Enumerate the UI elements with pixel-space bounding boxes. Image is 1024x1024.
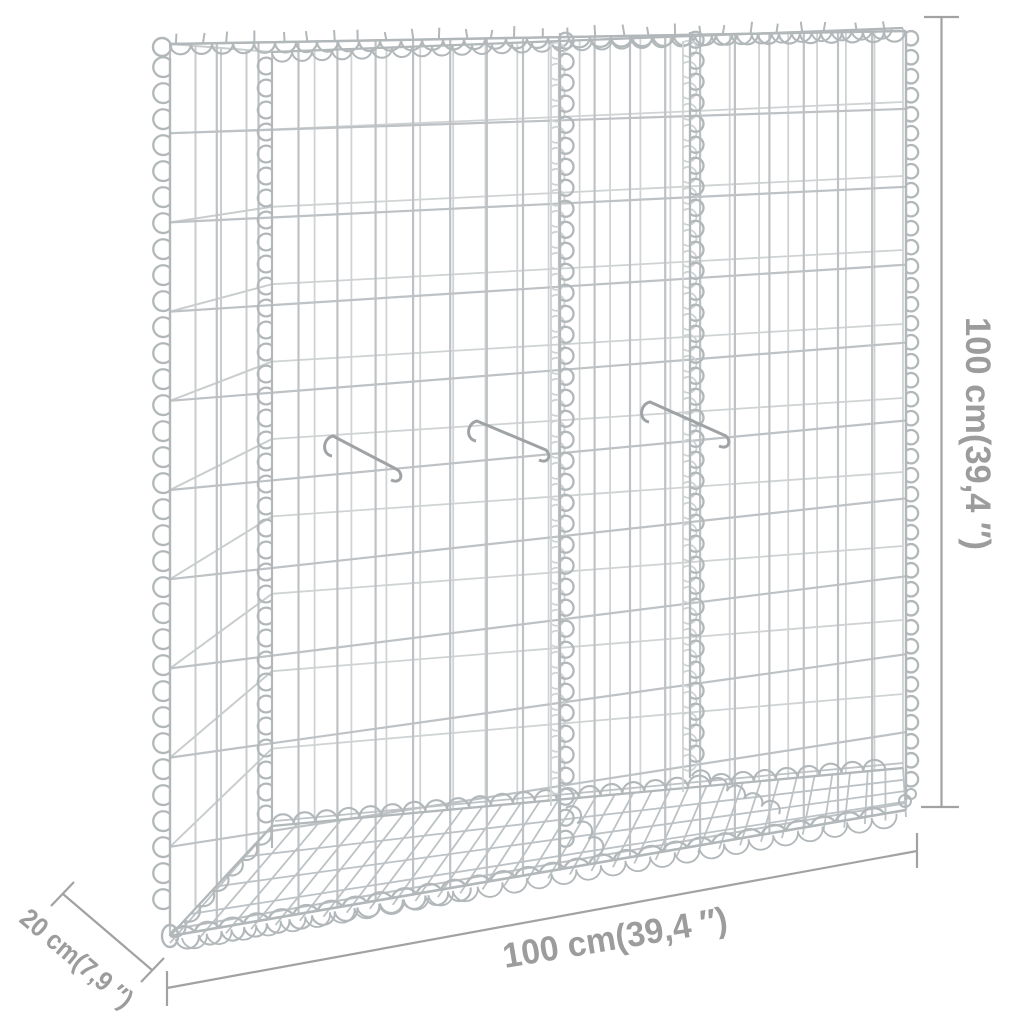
svg-text:100 cm(39,4 ″): 100 cm(39,4 ″) [958,317,997,550]
